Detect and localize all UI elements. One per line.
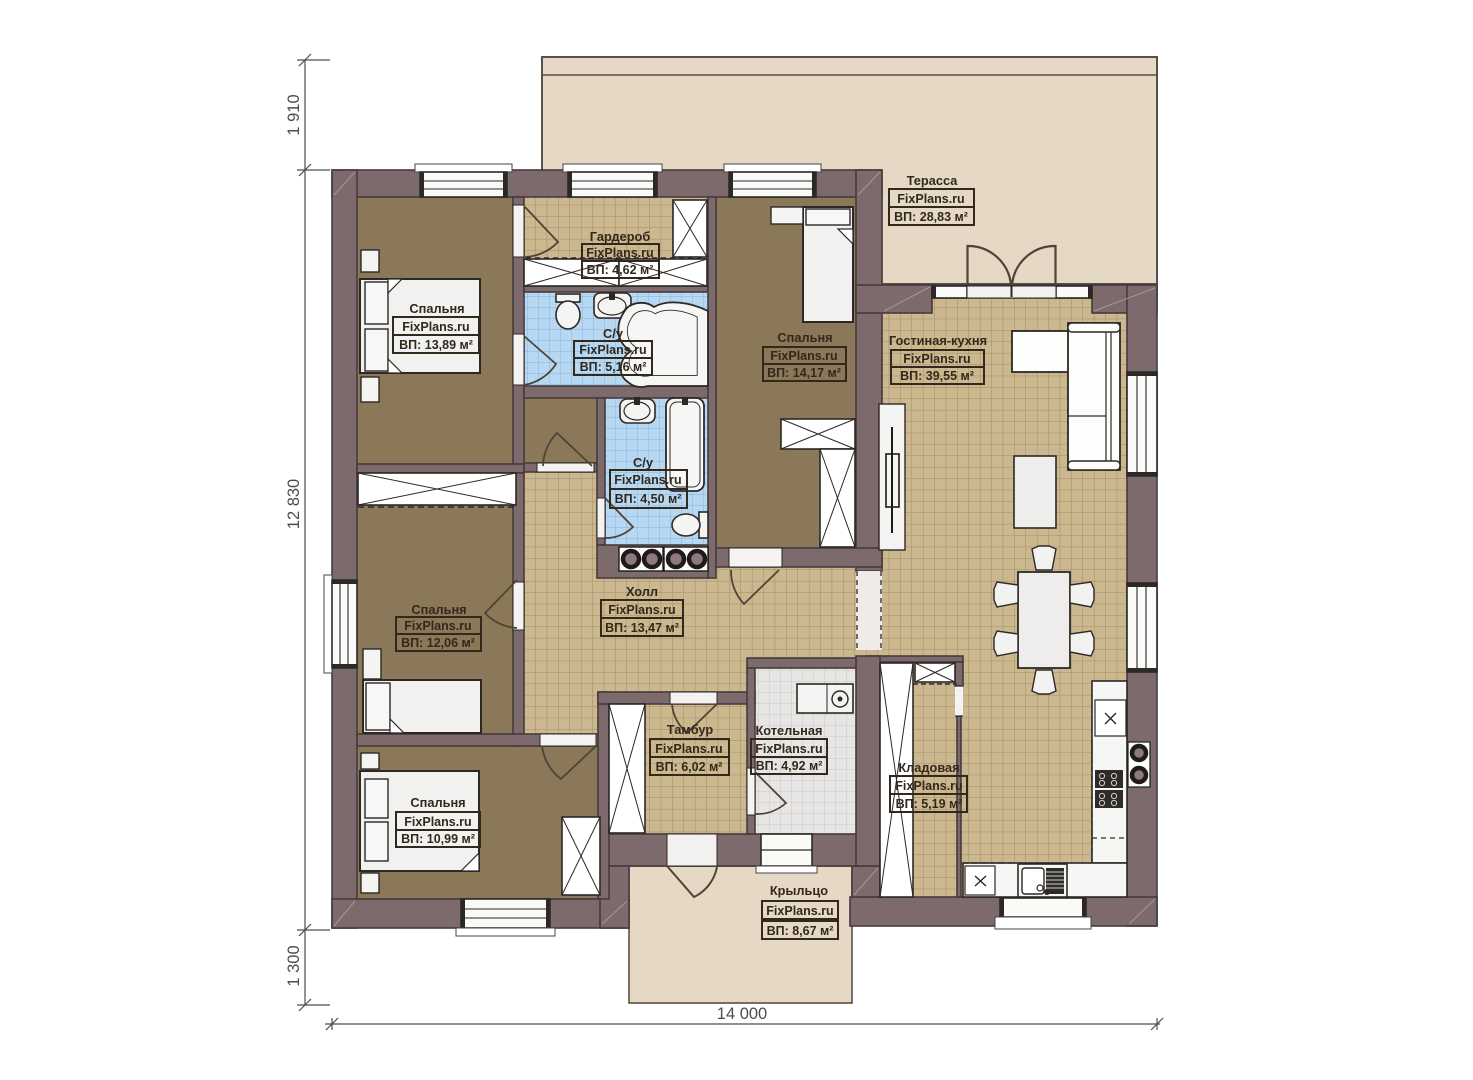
svg-text:FixPlans.ru: FixPlans.ru (608, 603, 675, 617)
svg-text:Терасса: Терасса (907, 173, 959, 188)
svg-text:FixPlans.ru: FixPlans.ru (402, 320, 469, 334)
svg-text:ВП: 5,19 м²: ВП: 5,19 м² (896, 797, 963, 811)
svg-text:FixPlans.ru: FixPlans.ru (579, 343, 646, 357)
svg-text:FixPlans.ru: FixPlans.ru (903, 352, 970, 366)
svg-text:ВП: 4,92 м²: ВП: 4,92 м² (756, 759, 823, 773)
svg-text:1 910: 1 910 (285, 94, 303, 135)
svg-text:Спальня: Спальня (777, 330, 832, 345)
svg-text:Тамбур: Тамбур (667, 722, 714, 737)
svg-text:14 000: 14 000 (717, 1005, 767, 1023)
svg-text:С/у: С/у (603, 326, 624, 341)
svg-text:ВП: 13,89 м²: ВП: 13,89 м² (399, 338, 473, 352)
svg-text:FixPlans.ru: FixPlans.ru (586, 246, 653, 260)
svg-text:Кладовая: Кладовая (898, 760, 959, 775)
svg-text:ВП: 28,83 м²: ВП: 28,83 м² (894, 210, 968, 224)
svg-text:Холл: Холл (626, 584, 658, 599)
svg-text:FixPlans.ru: FixPlans.ru (895, 779, 962, 793)
svg-text:FixPlans.ru: FixPlans.ru (766, 904, 833, 918)
svg-text:ВП: 5,16 м²: ВП: 5,16 м² (580, 360, 647, 374)
svg-text:Гостиная-кухня: Гостиная-кухня (889, 333, 987, 348)
svg-text:С/у: С/у (633, 455, 654, 470)
svg-text:ВП: 39,55 м²: ВП: 39,55 м² (900, 369, 974, 383)
svg-text:ВП: 8,67 м²: ВП: 8,67 м² (767, 924, 834, 938)
svg-text:FixPlans.ru: FixPlans.ru (404, 815, 471, 829)
svg-text:ВП: 13,47 м²: ВП: 13,47 м² (605, 621, 679, 635)
svg-text:FixPlans.ru: FixPlans.ru (655, 742, 722, 756)
svg-text:Спальня: Спальня (409, 301, 464, 316)
svg-text:FixPlans.ru: FixPlans.ru (755, 742, 822, 756)
svg-text:FixPlans.ru: FixPlans.ru (614, 473, 681, 487)
svg-text:FixPlans.ru: FixPlans.ru (897, 192, 964, 206)
svg-text:FixPlans.ru: FixPlans.ru (770, 349, 837, 363)
svg-text:ВП: 6,02 м²: ВП: 6,02 м² (656, 760, 723, 774)
svg-text:Гардероб: Гардероб (590, 229, 651, 244)
svg-text:ВП: 12,06 м²: ВП: 12,06 м² (401, 636, 475, 650)
svg-text:1 300: 1 300 (285, 945, 303, 986)
svg-text:12 830: 12 830 (285, 479, 303, 529)
svg-text:Котельная: Котельная (755, 723, 822, 738)
svg-text:ВП: 14,17 м²: ВП: 14,17 м² (767, 366, 841, 380)
svg-text:Крыльцо: Крыльцо (770, 883, 828, 898)
svg-text:ВП: 4,50 м²: ВП: 4,50 м² (615, 492, 682, 506)
svg-text:ВП: 10,99 м²: ВП: 10,99 м² (401, 832, 475, 846)
svg-text:Спальня: Спальня (410, 795, 465, 810)
svg-text:FixPlans.ru: FixPlans.ru (404, 619, 471, 633)
svg-text:Спальня: Спальня (411, 602, 466, 617)
svg-text:ВП: 4,62 м²: ВП: 4,62 м² (587, 263, 654, 277)
